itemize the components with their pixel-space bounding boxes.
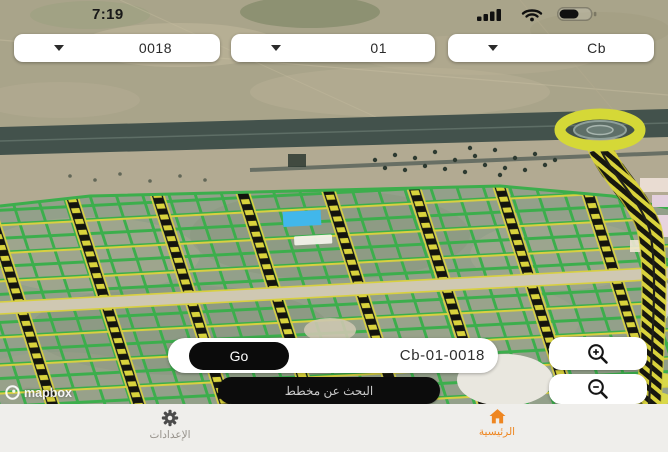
magnifier-plus-icon [586, 342, 610, 366]
mapbox-logo-icon [5, 385, 20, 400]
go-button[interactable]: Go [189, 342, 289, 370]
zoom-out-button[interactable] [549, 374, 647, 404]
plot-number-select[interactable]: 0018 [14, 34, 220, 62]
chevron-down-icon [488, 45, 498, 51]
chevron-down-icon [54, 45, 64, 51]
bottom-nav-bar: الإعدادات الرئيسية [0, 404, 668, 452]
nav-item-settings[interactable]: الإعدادات [125, 409, 215, 441]
block-number-select[interactable]: 01 [231, 34, 435, 62]
magnifier-minus-icon [586, 377, 610, 401]
settings-label: الإعدادات [149, 429, 190, 441]
mapbox-attribution[interactable]: mapbox [5, 385, 72, 400]
chevron-down-icon [271, 45, 281, 51]
block-number-value: 01 [370, 40, 435, 56]
home-icon [489, 409, 506, 424]
plan-search-button[interactable]: البحث عن مخطط [218, 377, 440, 404]
district-code-value: Cb [587, 40, 654, 56]
app-screen: 7:19 0018 01 [0, 0, 668, 452]
satellite-desert [0, 0, 668, 220]
gear-icon [161, 409, 179, 427]
parcel-search-bar: Go Cb-01-0018 [168, 338, 498, 373]
district-code-select[interactable]: Cb [448, 34, 654, 62]
mapbox-attribution-text: mapbox [24, 386, 72, 400]
zoom-in-button[interactable] [549, 337, 647, 370]
home-label: الرئيسية [479, 426, 515, 438]
search-query-text[interactable]: Cb-01-0018 [400, 347, 498, 364]
plot-number-value: 0018 [139, 40, 220, 56]
nav-item-home[interactable]: الرئيسية [452, 409, 542, 438]
